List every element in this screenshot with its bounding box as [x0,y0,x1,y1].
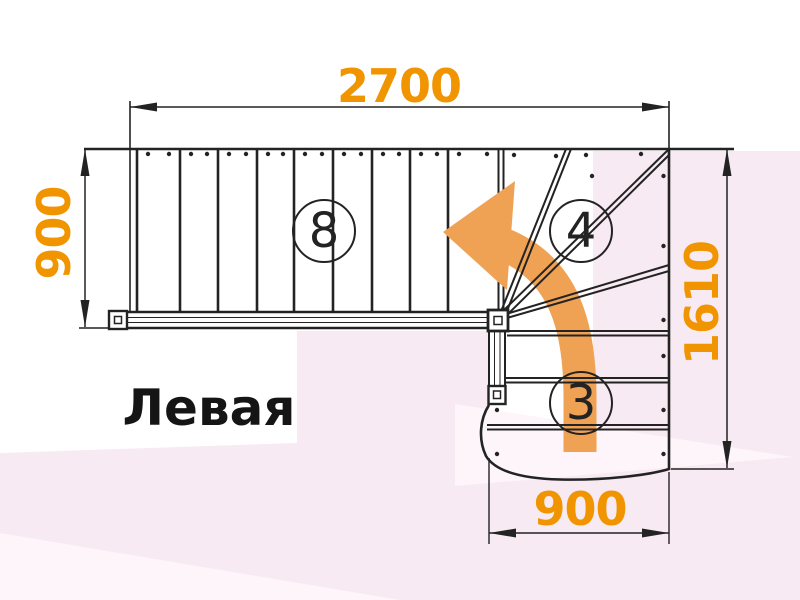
step-count-upper-label: 8 [309,207,340,255]
staircase-plan-page: 2700 900 1610 900 8 4 3 Левая [0,0,800,600]
dimension-label-bottom: 900 [533,486,626,532]
step-count-winder-label: 4 [566,207,597,255]
plan-title: Левая [123,379,296,437]
step-count-lower-flight: 3 [549,371,613,435]
step-count-upper-flight: 8 [292,199,356,263]
step-count-lower-label: 3 [566,379,597,427]
dimension-line-left [81,149,90,327]
dimension-label-left: 900 [31,186,77,279]
dimension-label-top: 2700 [337,63,461,109]
step-count-winder: 4 [549,199,613,263]
dimension-label-right: 1610 [679,241,725,365]
stringer [79,312,489,328]
lower-flight-rail [489,330,505,387]
